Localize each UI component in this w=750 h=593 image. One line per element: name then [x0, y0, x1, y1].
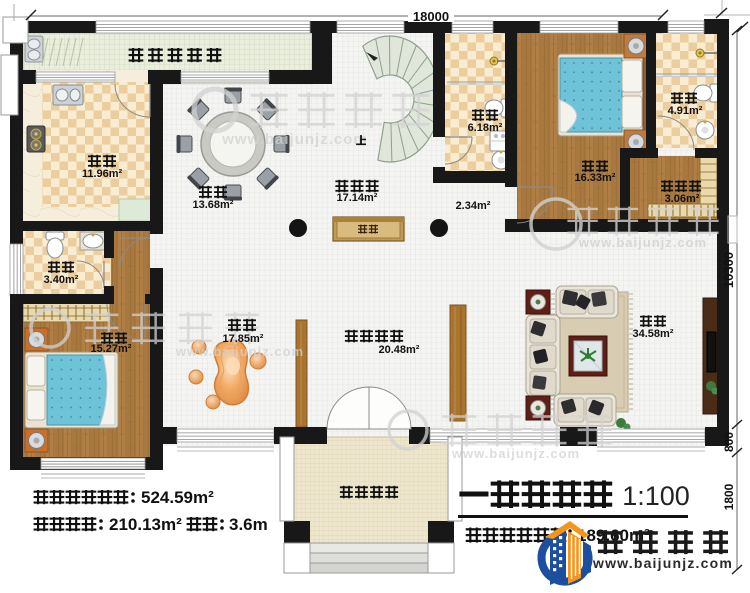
svg-text:6.18m²: 6.18m²: [468, 122, 503, 134]
svg-text:3.06m²: 3.06m²: [665, 193, 700, 205]
svg-text:16.33m²: 16.33m²: [575, 172, 616, 184]
svg-text:34.58m²: 34.58m²: [633, 328, 674, 340]
svg-text:www.baijunjz.com: www.baijunjz.com: [175, 344, 304, 359]
svg-text:17.85m²: 17.85m²: [223, 333, 264, 345]
svg-text:3.40m²: 3.40m²: [44, 274, 79, 286]
svg-text:www.baijunjz.com: www.baijunjz.com: [451, 446, 580, 461]
svg-text:1800: 1800: [722, 483, 736, 510]
svg-text:2.34m²: 2.34m²: [456, 200, 491, 212]
svg-text:18000: 18000: [413, 9, 449, 24]
svg-text:10300: 10300: [721, 252, 736, 288]
svg-text:15.27m²: 15.27m²: [91, 343, 132, 355]
svg-text:800: 800: [722, 432, 736, 452]
svg-text:20.48m²: 20.48m²: [379, 344, 420, 356]
svg-text:13.68m²: 13.68m²: [193, 199, 234, 211]
svg-text:3.6m: 3.6m: [229, 515, 268, 534]
svg-text:1:100: 1:100: [622, 481, 690, 511]
svg-text:524.59m²: 524.59m²: [141, 488, 214, 507]
svg-text:11.96m²: 11.96m²: [82, 168, 123, 180]
svg-text:210.13m²: 210.13m²: [109, 515, 182, 534]
svg-text:www.baijunjz.com: www.baijunjz.com: [592, 555, 733, 571]
svg-text:17.14m²: 17.14m²: [337, 192, 378, 204]
svg-text:www.baijunjz.com: www.baijunjz.com: [578, 235, 707, 250]
svg-text:www.baijunjz.com: www.baijunjz.com: [221, 131, 367, 148]
svg-text:4.91m²: 4.91m²: [668, 105, 703, 117]
